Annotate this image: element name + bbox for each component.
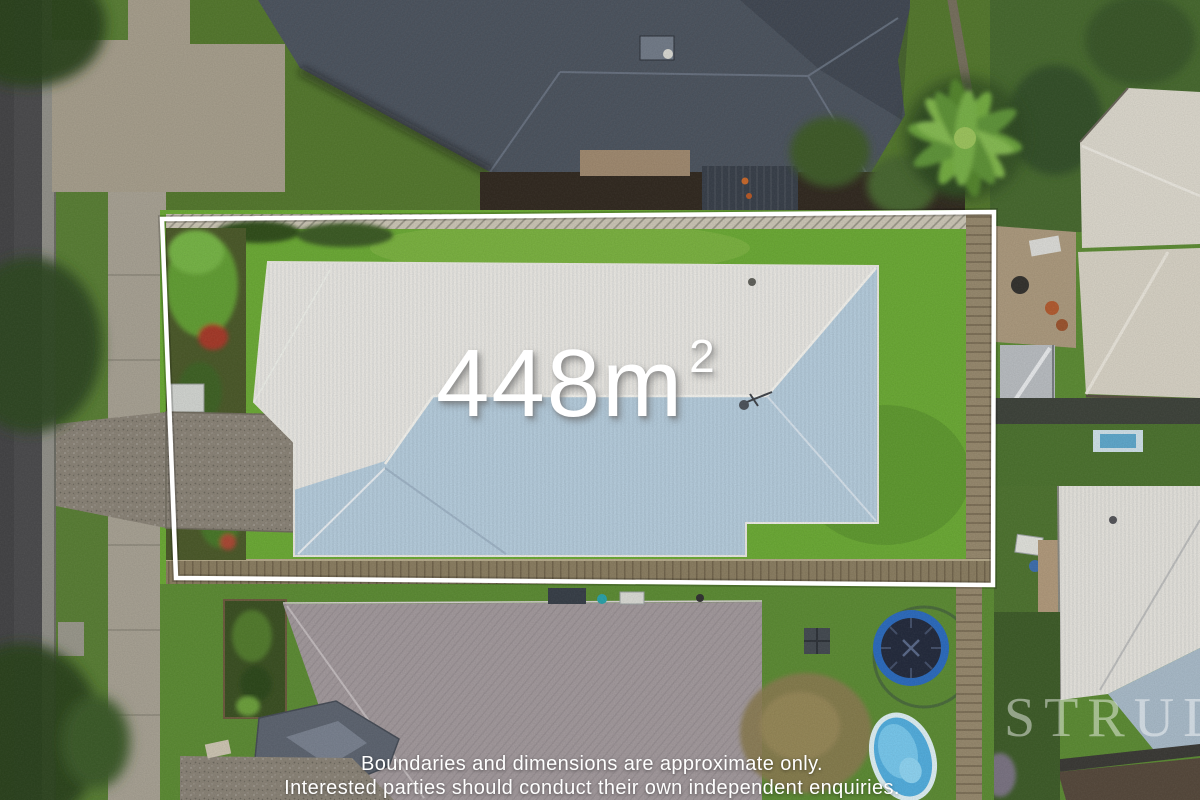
area-value: 448m	[436, 330, 684, 437]
disclaimer: Boundaries and dimensions are approximat…	[0, 752, 1184, 800]
disclaimer-line-2: Interested parties should conduct their …	[0, 776, 1184, 800]
area-label: 448m2	[436, 336, 717, 432]
disclaimer-line-1: Boundaries and dimensions are approximat…	[0, 752, 1184, 776]
watermark: STRUD	[1004, 686, 1200, 750]
area-exponent: 2	[689, 330, 717, 382]
aerial-property-photo: 448m2 Boundaries and dimensions are appr…	[0, 0, 1200, 800]
